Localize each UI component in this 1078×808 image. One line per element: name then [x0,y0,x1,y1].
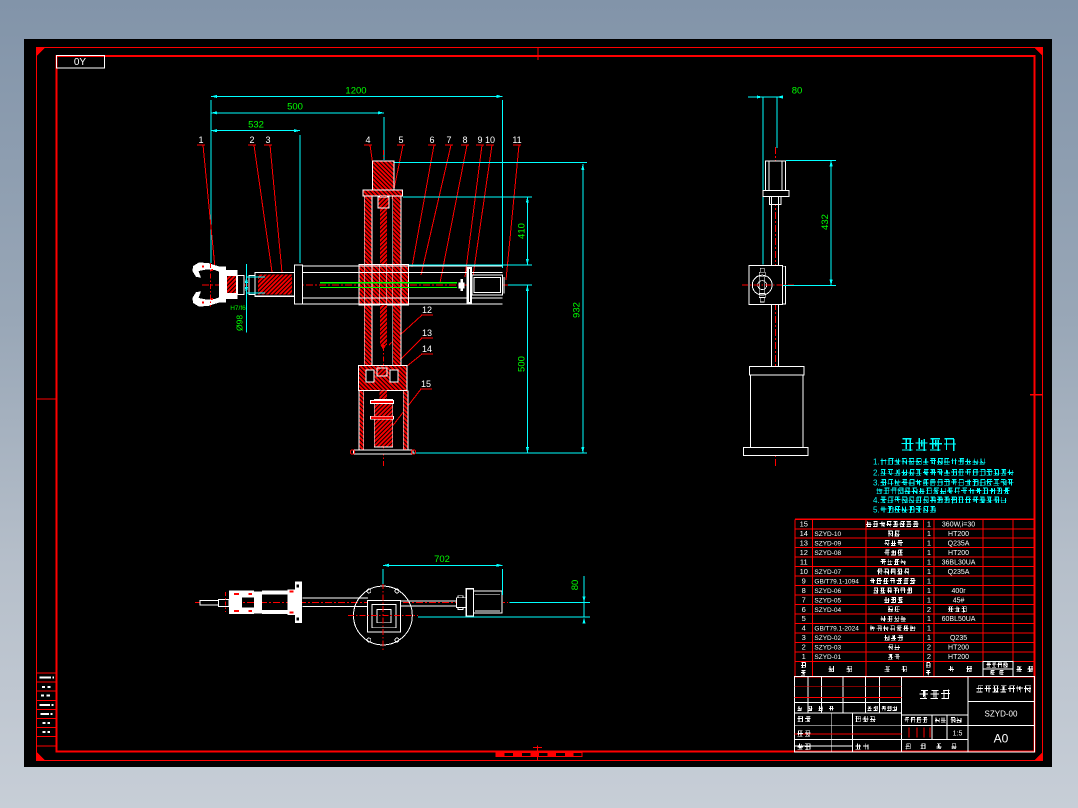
svg-text:SZYD-03: SZYD-03 [814,645,841,652]
svg-text:1: 1 [927,595,931,604]
svg-text:Q235A: Q235A [948,540,970,547]
svg-text:1200: 1200 [345,86,366,97]
svg-text:SZYD-10: SZYD-10 [814,531,841,538]
svg-text:HT200: HT200 [948,654,969,661]
svg-text:10: 10 [485,135,495,145]
svg-text:36BL30UA: 36BL30UA [942,559,976,566]
svg-text:4: 4 [802,624,806,633]
svg-text:2: 2 [927,652,931,661]
svg-text:13: 13 [422,328,432,338]
svg-text:1:5: 1:5 [953,731,963,738]
svg-text:11: 11 [800,557,808,566]
svg-text:500: 500 [517,356,528,372]
svg-text:3: 3 [802,633,806,642]
svg-text:HT200: HT200 [948,645,969,652]
svg-text:HT200: HT200 [948,550,969,557]
svg-text:SZYD-05: SZYD-05 [814,597,841,604]
svg-text:2.: 2. [873,469,880,478]
svg-text:360W,i=30: 360W,i=30 [942,522,975,529]
svg-text:80: 80 [570,580,581,591]
svg-text:SZYD-01: SZYD-01 [814,654,841,661]
svg-text:12: 12 [800,548,808,557]
svg-text:432: 432 [820,214,831,230]
svg-text:5: 5 [802,614,806,623]
svg-text:4: 4 [365,135,370,145]
svg-text:1: 1 [927,576,931,585]
svg-text:12: 12 [422,305,432,315]
svg-text:Q235: Q235 [950,635,967,642]
svg-text:13: 13 [800,538,808,547]
svg-text:H7/f6: H7/f6 [230,305,246,312]
svg-text:1: 1 [927,548,931,557]
svg-text:1: 1 [198,135,203,145]
svg-text:1: 1 [927,529,931,538]
svg-text:6: 6 [802,605,806,614]
svg-text:0Y: 0Y [74,57,87,68]
svg-text:80: 80 [792,86,803,97]
svg-text:11: 11 [512,135,521,145]
svg-text:3: 3 [265,135,270,145]
svg-text:400r: 400r [952,588,967,595]
svg-text:7: 7 [446,135,451,145]
svg-text:SZYD-02: SZYD-02 [814,635,841,642]
svg-text:1: 1 [927,567,931,576]
svg-text:8: 8 [462,135,467,145]
svg-text:7: 7 [802,595,806,604]
svg-text:Ø98: Ø98 [235,315,245,331]
svg-text:1: 1 [927,520,931,529]
svg-text:Q235A: Q235A [948,569,970,576]
svg-text:1: 1 [927,624,931,633]
svg-text:SZYD-00: SZYD-00 [985,710,1018,719]
svg-text:932: 932 [572,302,583,318]
svg-text:1: 1 [802,652,806,661]
svg-text:410: 410 [517,223,528,239]
svg-text:8: 8 [802,586,806,595]
svg-text:SZYD-06: SZYD-06 [814,588,841,595]
svg-text:GB/T79.1-2024: GB/T79.1-2024 [814,626,859,633]
svg-text:1: 1 [927,557,931,566]
svg-text:2: 2 [927,643,931,652]
svg-text:A0: A0 [994,732,1009,746]
svg-text:1.: 1. [873,458,880,467]
svg-text:HT200: HT200 [948,531,969,538]
svg-text:1: 1 [927,633,931,642]
svg-text:SZYD-07: SZYD-07 [814,569,841,576]
svg-text:3.: 3. [873,479,880,488]
svg-text:SZYD-08: SZYD-08 [814,550,841,557]
svg-text:60BL50UA: 60BL50UA [942,616,976,623]
svg-text:500: 500 [287,102,303,113]
svg-text:1: 1 [927,586,931,595]
svg-text:2: 2 [802,643,806,652]
svg-text:9: 9 [802,576,806,585]
svg-text:6: 6 [429,135,434,145]
svg-text:1: 1 [927,614,931,623]
svg-text:4.: 4. [873,496,880,505]
svg-text:10: 10 [800,567,808,576]
svg-text:2: 2 [249,135,254,145]
svg-text:5: 5 [398,135,403,145]
svg-text:15: 15 [800,520,808,529]
svg-text:5.: 5. [873,506,880,515]
svg-text:SZYD-09: SZYD-09 [814,540,841,547]
svg-text:9: 9 [477,135,482,145]
svg-text:GB/T79.1-1094: GB/T79.1-1094 [814,578,859,585]
svg-text:45#: 45# [953,597,965,604]
svg-text:14: 14 [800,529,808,538]
svg-text:15: 15 [421,379,431,389]
svg-text:14: 14 [422,344,432,354]
svg-text:SZYD-04: SZYD-04 [814,607,841,614]
svg-text:2: 2 [927,605,931,614]
svg-text:702: 702 [434,554,450,565]
svg-text:532: 532 [248,120,264,131]
svg-text:1: 1 [927,538,931,547]
